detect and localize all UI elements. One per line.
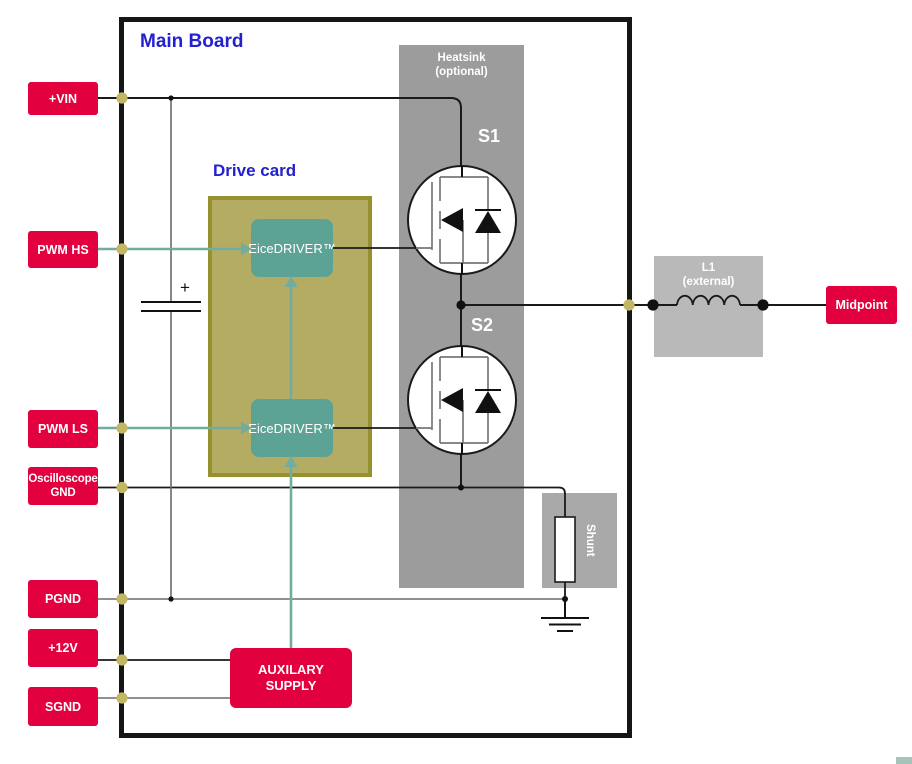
wiring-layer (0, 0, 912, 764)
board-io-dots (116, 92, 634, 703)
schematic-canvas: EiceDRIVER™ EiceDRIVER™ (0, 0, 912, 764)
aux-supply-wires (285, 276, 298, 648)
heatsink-label: Heatsink (optional) (399, 51, 524, 79)
gate-wires (333, 248, 417, 428)
terminal-pwm-ls: PWM LS (28, 410, 98, 448)
vin-wire (98, 98, 461, 168)
aux-input-wires (98, 660, 230, 698)
capacitor-polarity: + (180, 278, 190, 298)
switch-s1-label: S1 (478, 126, 500, 147)
inductor-label: L1 (external) (654, 261, 763, 289)
midpoint-wire (461, 296, 826, 305)
shunt-label: Shunt (578, 493, 602, 588)
terminal-12v: +12V (28, 629, 98, 667)
mosfet-s2 (408, 346, 516, 454)
shunt-resistor (555, 517, 575, 599)
inductor-coil (677, 296, 740, 305)
ground-symbol (541, 599, 589, 631)
corner-decoration (896, 757, 912, 764)
terminal-pwm-hs: PWM HS (28, 231, 98, 268)
terminal-sgnd: SGND (28, 687, 98, 726)
terminal-osc-gnd: Oscilloscope GND (28, 467, 98, 505)
dc-link-capacitor (141, 98, 201, 599)
switch-s2-label: S2 (471, 315, 493, 336)
mosfet-s1 (408, 166, 516, 274)
main-board-title: Main Board (140, 31, 243, 53)
aux-supply-box: AUXILARY SUPPLY (230, 648, 352, 708)
terminal-midpoint: Midpoint (826, 286, 897, 324)
osc-gnd-wire (98, 488, 565, 518)
drive-card-title: Drive card (213, 161, 296, 181)
terminal-vin: +VIN (28, 82, 98, 115)
terminal-pgnd: PGND (28, 580, 98, 618)
